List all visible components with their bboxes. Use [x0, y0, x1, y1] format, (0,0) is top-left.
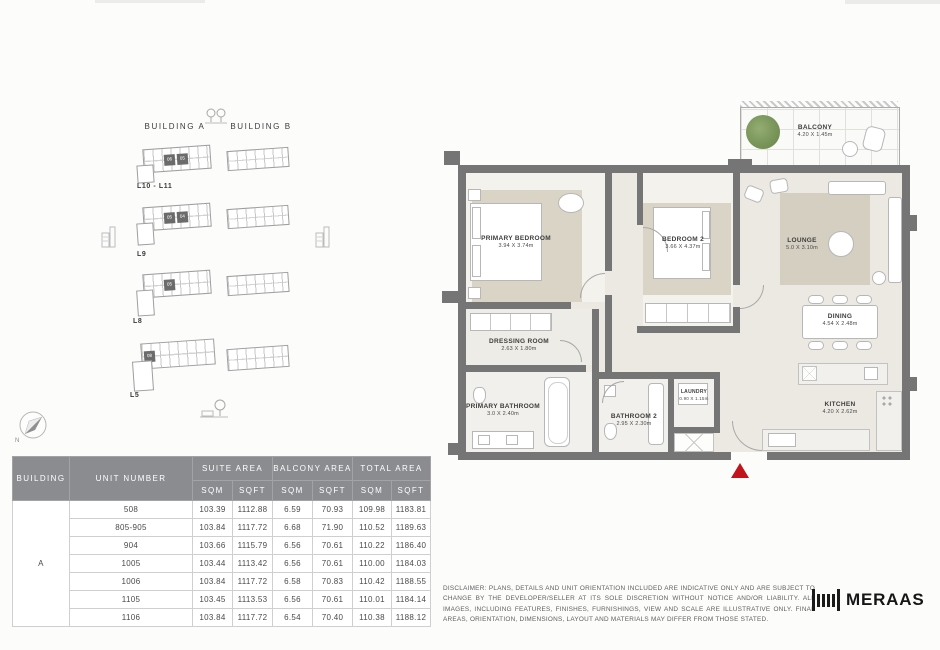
pillow-icon: [472, 207, 481, 239]
table-cell: 103.44: [193, 555, 233, 573]
table-cell: 1188.55: [392, 573, 431, 591]
table-cell: 110.00: [353, 555, 392, 573]
table-cell: 1117.72: [233, 609, 273, 627]
table-cell: 904: [70, 537, 193, 555]
table-row: A 508 103.39 1112.88 6.59 70.93 109.98 1…: [13, 501, 431, 519]
building-cell: A: [13, 501, 70, 627]
basin-icon: [506, 435, 518, 445]
building-a-label: BUILDING A: [127, 122, 223, 131]
level-label: L5: [130, 392, 139, 399]
armchair-icon: [558, 193, 584, 213]
logo-bars-icon: [812, 588, 840, 612]
table-cell: 1188.12: [392, 609, 431, 627]
table-header-sqm: SQM: [273, 481, 313, 501]
dining-chair-icon: [808, 341, 824, 350]
wall: [714, 379, 720, 427]
area-table: BUILDING UNIT NUMBER SUITE AREA BALCONY …: [12, 456, 431, 627]
table-row: 805-905 103.84 1117.72 6.68 71.90 110.52…: [13, 519, 431, 537]
unit-highlight-cell: 04: [177, 211, 189, 223]
entrance-marker: [731, 463, 749, 478]
stove-burners-icon: [881, 395, 893, 407]
wall: [466, 302, 571, 309]
wall: [592, 309, 599, 452]
table-cell: 6.56: [273, 537, 313, 555]
dining-chair-icon: [832, 295, 848, 304]
building-b-outline-l9: [226, 205, 289, 229]
wall: [637, 326, 740, 333]
table-cell: 6.54: [273, 609, 313, 627]
table-cell: 1113.53: [233, 591, 273, 609]
sofa-icon: [888, 197, 902, 283]
pillow-icon: [702, 211, 710, 239]
table-cell: 1113.42: [233, 555, 273, 573]
closet-icon: [645, 303, 731, 323]
building-a-wing: [132, 360, 154, 391]
wall: [458, 452, 731, 460]
table-cell: 70.61: [313, 537, 353, 555]
table-cell: 805-905: [70, 519, 193, 537]
table-header-sqft: SQFT: [392, 481, 431, 501]
building-b-outline-l8: [226, 272, 289, 296]
table-cell: 1106: [70, 609, 193, 627]
room-label-bedroom2: BEDROOM 2 3.66 X 4.37m: [662, 236, 704, 252]
wall: [668, 379, 674, 452]
nightstand-icon: [468, 189, 481, 201]
room-label-dining: DINING 4.54 X 2.48m: [822, 313, 857, 329]
compass-label: N: [15, 438, 19, 444]
plant-icon: [746, 115, 780, 149]
table-row: 1005 103.44 1113.42 6.56 70.61 110.00 11…: [13, 555, 431, 573]
table-header-unit-number: UNIT NUMBER: [70, 457, 193, 501]
table-cell: 109.98: [353, 501, 392, 519]
nightstand-icon: [468, 287, 481, 299]
table-cell: 110.01: [353, 591, 392, 609]
meraas-logo: MERAAS: [812, 588, 924, 612]
table-cell: 508: [70, 501, 193, 519]
table-header-total-area: TOTAL AREA: [353, 457, 431, 481]
logo-text: MERAAS: [846, 590, 924, 610]
table-header-sqm: SQM: [193, 481, 233, 501]
table-cell: 71.90: [313, 519, 353, 537]
disclaimer-text: DISCLAIMER: PLANS, DETAILS AND UNIT ORIE…: [443, 584, 815, 625]
sink-icon: [864, 367, 878, 380]
scan-artifact: [95, 0, 205, 3]
table-cell: 103.84: [193, 573, 233, 591]
unit-highlight-cell: 05: [164, 279, 176, 291]
table-cell: 6.68: [273, 519, 313, 537]
table-header-sqft: SQFT: [233, 481, 273, 501]
table-cell: 110.42: [353, 573, 392, 591]
table-cell: 103.45: [193, 591, 233, 609]
key-plan: BUILDING A BUILDING B 06 05 L10 - L11 05…: [95, 105, 340, 435]
table-cell: 1105: [70, 591, 193, 609]
table-cell: 1115.79: [233, 537, 273, 555]
dining-chair-icon: [832, 341, 848, 350]
unit-highlight-cell: 05: [177, 153, 189, 165]
wall-pillar: [908, 215, 917, 231]
table-cell: 70.61: [313, 555, 353, 573]
toilet-icon: [473, 387, 486, 404]
table-header-suite-area: SUITE AREA: [193, 457, 273, 481]
table-row: 1106 103.84 1117.72 6.54 70.40 110.38 11…: [13, 609, 431, 627]
wall: [767, 452, 910, 460]
brochure-page: BUILDING A BUILDING B 06 05 L10 - L11 05…: [0, 0, 940, 650]
table-cell: 1183.81: [392, 501, 431, 519]
table-cell: 110.38: [353, 609, 392, 627]
sofa-icon: [828, 181, 886, 195]
dining-chair-icon: [856, 341, 872, 350]
table-cell: 103.66: [193, 537, 233, 555]
floor-plan: BALCONY 4.20 X 1.45m: [440, 95, 930, 490]
wall-pillar: [442, 291, 458, 303]
building-b-label: BUILDING B: [217, 122, 305, 131]
building-a-wing: [136, 289, 155, 316]
level-label: L10 - L11: [137, 183, 172, 190]
room-label-balcony: BALCONY 4.20 X 1.45m: [797, 124, 832, 140]
wall: [458, 165, 466, 460]
table-cell: 110.52: [353, 519, 392, 537]
table-cell: 6.56: [273, 591, 313, 609]
side-table-icon: [872, 271, 886, 285]
table-header-building: BUILDING: [13, 457, 70, 501]
buildings-icon-right: [315, 225, 331, 249]
room-label-bathroom2: BATHROOM 2 2.95 X 2.30m: [611, 413, 657, 429]
table-cell: 110.22: [353, 537, 392, 555]
table-cell: 103.39: [193, 501, 233, 519]
table-cell: 70.61: [313, 591, 353, 609]
bathtub-inner: [548, 382, 568, 444]
unit-highlight-cell: 05: [164, 212, 176, 224]
table-cell: 6.56: [273, 555, 313, 573]
basin-icon: [478, 435, 490, 445]
table-cell: 1184.14: [392, 591, 431, 609]
wall: [458, 165, 910, 173]
wall: [902, 165, 910, 460]
table-header-sqft: SQFT: [313, 481, 353, 501]
room-label-kitchen: KITCHEN 4.20 X 2.62m: [822, 401, 857, 417]
room-label-lounge: LOUNGE 5.0 X 3.10m: [786, 237, 818, 253]
table-header-balcony-area: BALCONY AREA: [273, 457, 353, 481]
table-cell: 103.84: [193, 609, 233, 627]
dining-chair-icon: [856, 295, 872, 304]
room-label-laundry: LAUNDRY 0.90 X 1.15m: [679, 389, 708, 401]
table-cell: 1186.40: [392, 537, 431, 555]
unit-highlight-cell: 06: [164, 154, 176, 166]
building-a-wing: [136, 222, 154, 245]
table-cell: 1184.03: [392, 555, 431, 573]
table-cell: 70.40: [313, 609, 353, 627]
wall-pillar: [444, 151, 460, 165]
table-cell: 103.84: [193, 519, 233, 537]
table-header-sqm: SQM: [353, 481, 392, 501]
table-cell: 70.83: [313, 573, 353, 591]
coffee-table-icon: [828, 231, 854, 257]
balcony-table-icon: [842, 141, 858, 157]
wall: [637, 173, 643, 225]
table-cell: 70.93: [313, 501, 353, 519]
building-b-outline-l10: [226, 147, 289, 171]
table-cell: 1112.88: [233, 501, 273, 519]
wall-pillar: [448, 443, 460, 455]
table-cell: 6.59: [273, 501, 313, 519]
table-row: 904 103.66 1115.79 6.56 70.61 110.22 118…: [13, 537, 431, 555]
table-cell: 1189.63: [392, 519, 431, 537]
island-sink-icon: [768, 433, 796, 447]
wall-pillar: [728, 159, 752, 167]
wall: [605, 173, 612, 271]
wall: [605, 295, 612, 372]
wall: [599, 372, 720, 379]
wall: [668, 427, 720, 433]
wall: [466, 365, 586, 372]
shower-tray-icon: [674, 433, 714, 452]
hob-icon: [802, 366, 817, 381]
building-b-outline-l5: [226, 345, 289, 371]
level-label: L8: [133, 318, 142, 325]
wall-pillar: [908, 377, 917, 391]
table-cell: 1006: [70, 573, 193, 591]
building-a-wing: [136, 164, 154, 183]
room-label-dressing-room: DRESSING ROOM 2.63 X 1.80m: [489, 338, 549, 354]
wall: [733, 173, 740, 285]
table-cell: 6.58: [273, 573, 313, 591]
closet-icon: [470, 313, 552, 331]
room-label-primary-bathroom: PRIMARY BATHROOM 3.0 X 2.40m: [466, 403, 540, 419]
table-cell: 1005: [70, 555, 193, 573]
pillow-icon: [472, 245, 481, 277]
level-label: L9: [137, 251, 146, 258]
buildings-icon-left: [101, 225, 117, 249]
room-label-primary-bedroom: PRIMARY BEDROOM 3.94 X 3.74m: [481, 235, 551, 251]
compass-icon: N: [12, 408, 52, 448]
scan-artifact: [845, 0, 940, 4]
tree-icon: [199, 397, 229, 419]
table-row: 1006 103.84 1117.72 6.58 70.83 110.42 11…: [13, 573, 431, 591]
table-row: 1105 103.45 1113.53 6.56 70.61 110.01 11…: [13, 591, 431, 609]
table-cell: 1117.72: [233, 519, 273, 537]
dining-chair-icon: [808, 295, 824, 304]
table-cell: 1117.72: [233, 573, 273, 591]
